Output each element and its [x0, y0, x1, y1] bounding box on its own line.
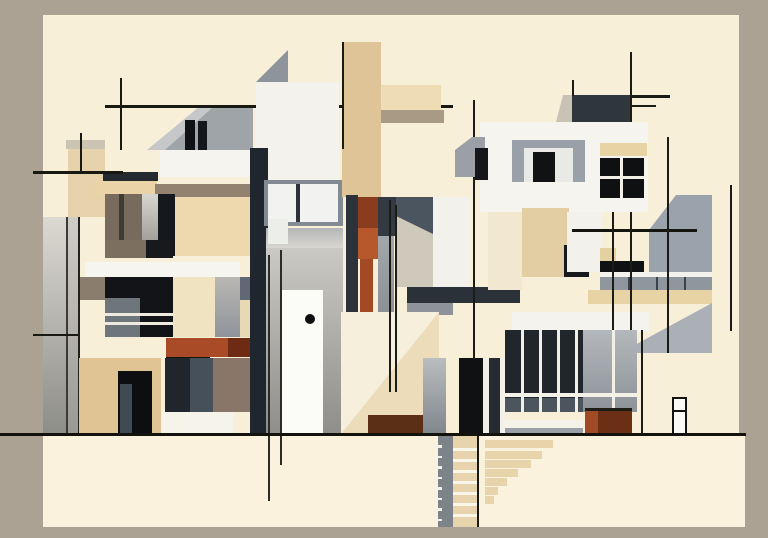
- vline-tan-column: [342, 42, 344, 149]
- artwork-frame: [0, 0, 768, 538]
- taupe-cross-band: [381, 110, 444, 123]
- right-white-band-low: [512, 312, 649, 332]
- stair-tread-lines: [453, 448, 477, 451]
- right-window-mullion-h: [600, 176, 644, 179]
- center-window-mullion: [296, 184, 300, 222]
- left-silver-pilaster-2: [68, 217, 78, 436]
- railing-divider-2: [656, 277, 658, 290]
- stair-tread-lines: [453, 503, 477, 506]
- door-knob: [305, 314, 315, 324]
- vline-x120: [120, 78, 122, 150]
- door-frame-line-left: [268, 255, 270, 501]
- center-black-column-low: [459, 358, 483, 436]
- beige-tower-roof: [66, 140, 105, 149]
- left-cream-column: [173, 277, 215, 337]
- vline-x395: [395, 205, 397, 392]
- left-white-stripe-1: [105, 313, 173, 316]
- stair-edge-line: [477, 436, 479, 527]
- left-taupe-square: [105, 240, 146, 258]
- roof-window-2: [198, 121, 207, 150]
- vline-x612: [612, 212, 614, 330]
- stair-nosing-dashes: [433, 477, 442, 480]
- stair-nosing-dashes: [433, 445, 442, 448]
- vline-x630-top: [630, 52, 632, 122]
- stair-nosing-dashes: [433, 487, 442, 490]
- right-black-window-small: [475, 148, 488, 180]
- vline-x389: [389, 200, 391, 392]
- railing-divider-3: [684, 277, 686, 290]
- left-white-band-upper: [160, 150, 256, 177]
- left-taupe-block: [213, 358, 250, 412]
- court-window: [533, 152, 555, 182]
- stair-tread-lines: [453, 481, 477, 484]
- left-gray-column: [215, 277, 240, 337]
- left-gray-door: [120, 384, 132, 436]
- foreground-courtyard: [43, 436, 745, 527]
- center-white-notch: [268, 219, 288, 244]
- stair-tread-lines: [453, 514, 477, 517]
- center-dark-strip-low: [489, 358, 500, 436]
- vline-x730: [730, 185, 732, 331]
- rust-column-lower: [360, 259, 373, 313]
- vline-x630-mid: [630, 212, 632, 330]
- left-slate-window: [190, 358, 213, 412]
- rust-panel-bright: [358, 228, 378, 259]
- stair-step-3: [485, 460, 531, 468]
- stair-tread-lines: [453, 492, 477, 495]
- vline-x667: [667, 137, 669, 353]
- left-silver-pilaster: [43, 217, 66, 436]
- center-slate-column: [346, 195, 358, 315]
- stair-step-7: [485, 496, 494, 504]
- left-gray-inset: [105, 298, 140, 337]
- center-window-pane-2: [300, 184, 338, 222]
- stair-step-5: [485, 478, 507, 486]
- hline-y172: [33, 171, 123, 174]
- right-white-wall-mid: [567, 212, 602, 272]
- slate-roof-strip: [396, 197, 433, 216]
- hline-y106-right: [632, 105, 656, 107]
- hline-y230: [572, 229, 697, 232]
- vline-x572-top: [572, 80, 574, 96]
- mullion-4: [575, 330, 578, 412]
- right-beige-strip: [600, 143, 647, 156]
- stair-nosing-dashes: [433, 498, 442, 501]
- white-post: [672, 397, 687, 436]
- left-beige-band: [95, 181, 157, 195]
- left-black-square: [146, 240, 173, 258]
- stair-step-2: [485, 451, 542, 459]
- stair-step-1: [485, 440, 553, 448]
- left-white-stripe-2: [105, 322, 173, 325]
- stair-gray-stringer: [438, 436, 453, 527]
- tan-cross-column: [342, 42, 381, 197]
- mullion-3: [557, 330, 560, 412]
- center-white-wall: [256, 82, 339, 180]
- roof-window-1: [185, 120, 195, 150]
- left-dark-window: [165, 358, 190, 412]
- stair-tread-lines: [453, 459, 477, 462]
- mullion-1: [521, 330, 524, 412]
- glass-panel-right: [583, 330, 637, 412]
- stair-tread-lines: [453, 470, 477, 473]
- vline-x80: [80, 133, 82, 173]
- light-tan-block: [381, 85, 441, 110]
- roof-box: [572, 95, 632, 122]
- left-beige-panel: [175, 197, 253, 256]
- window-sill: [505, 420, 583, 428]
- center-white-wall-2: [433, 197, 470, 287]
- stair-nosing-dashes: [433, 519, 442, 522]
- rust-band: [166, 338, 228, 357]
- hline-y96: [630, 95, 670, 98]
- balcony-slab: [588, 290, 712, 304]
- right-tan-panel: [522, 208, 569, 277]
- right-cream-column: [488, 212, 522, 290]
- ground-line: [0, 433, 746, 436]
- artwork-canvas: [0, 0, 768, 538]
- glass-mullion: [612, 330, 615, 412]
- white-post-divider: [672, 410, 687, 412]
- left-white-band-mid: [85, 262, 240, 277]
- window-rail: [505, 393, 637, 397]
- stair-nosing-dashes: [433, 466, 442, 469]
- center-window-pane-1: [268, 184, 296, 222]
- stair-nosing-dashes: [433, 508, 442, 511]
- center-charcoal-panel: [378, 197, 396, 236]
- rust-panel-dark: [358, 197, 378, 228]
- stair-step-6: [485, 487, 498, 495]
- stair-nosing-dashes: [433, 456, 442, 459]
- center-white-door: [281, 290, 323, 436]
- hline-y335: [33, 334, 78, 336]
- vline-x641: [641, 330, 643, 436]
- center-gray-column: [378, 236, 394, 315]
- mullion-2: [539, 330, 542, 412]
- center-gray-strip-low: [423, 358, 446, 436]
- left-taupe-square-2: [80, 277, 105, 300]
- stair-step-4: [485, 469, 518, 477]
